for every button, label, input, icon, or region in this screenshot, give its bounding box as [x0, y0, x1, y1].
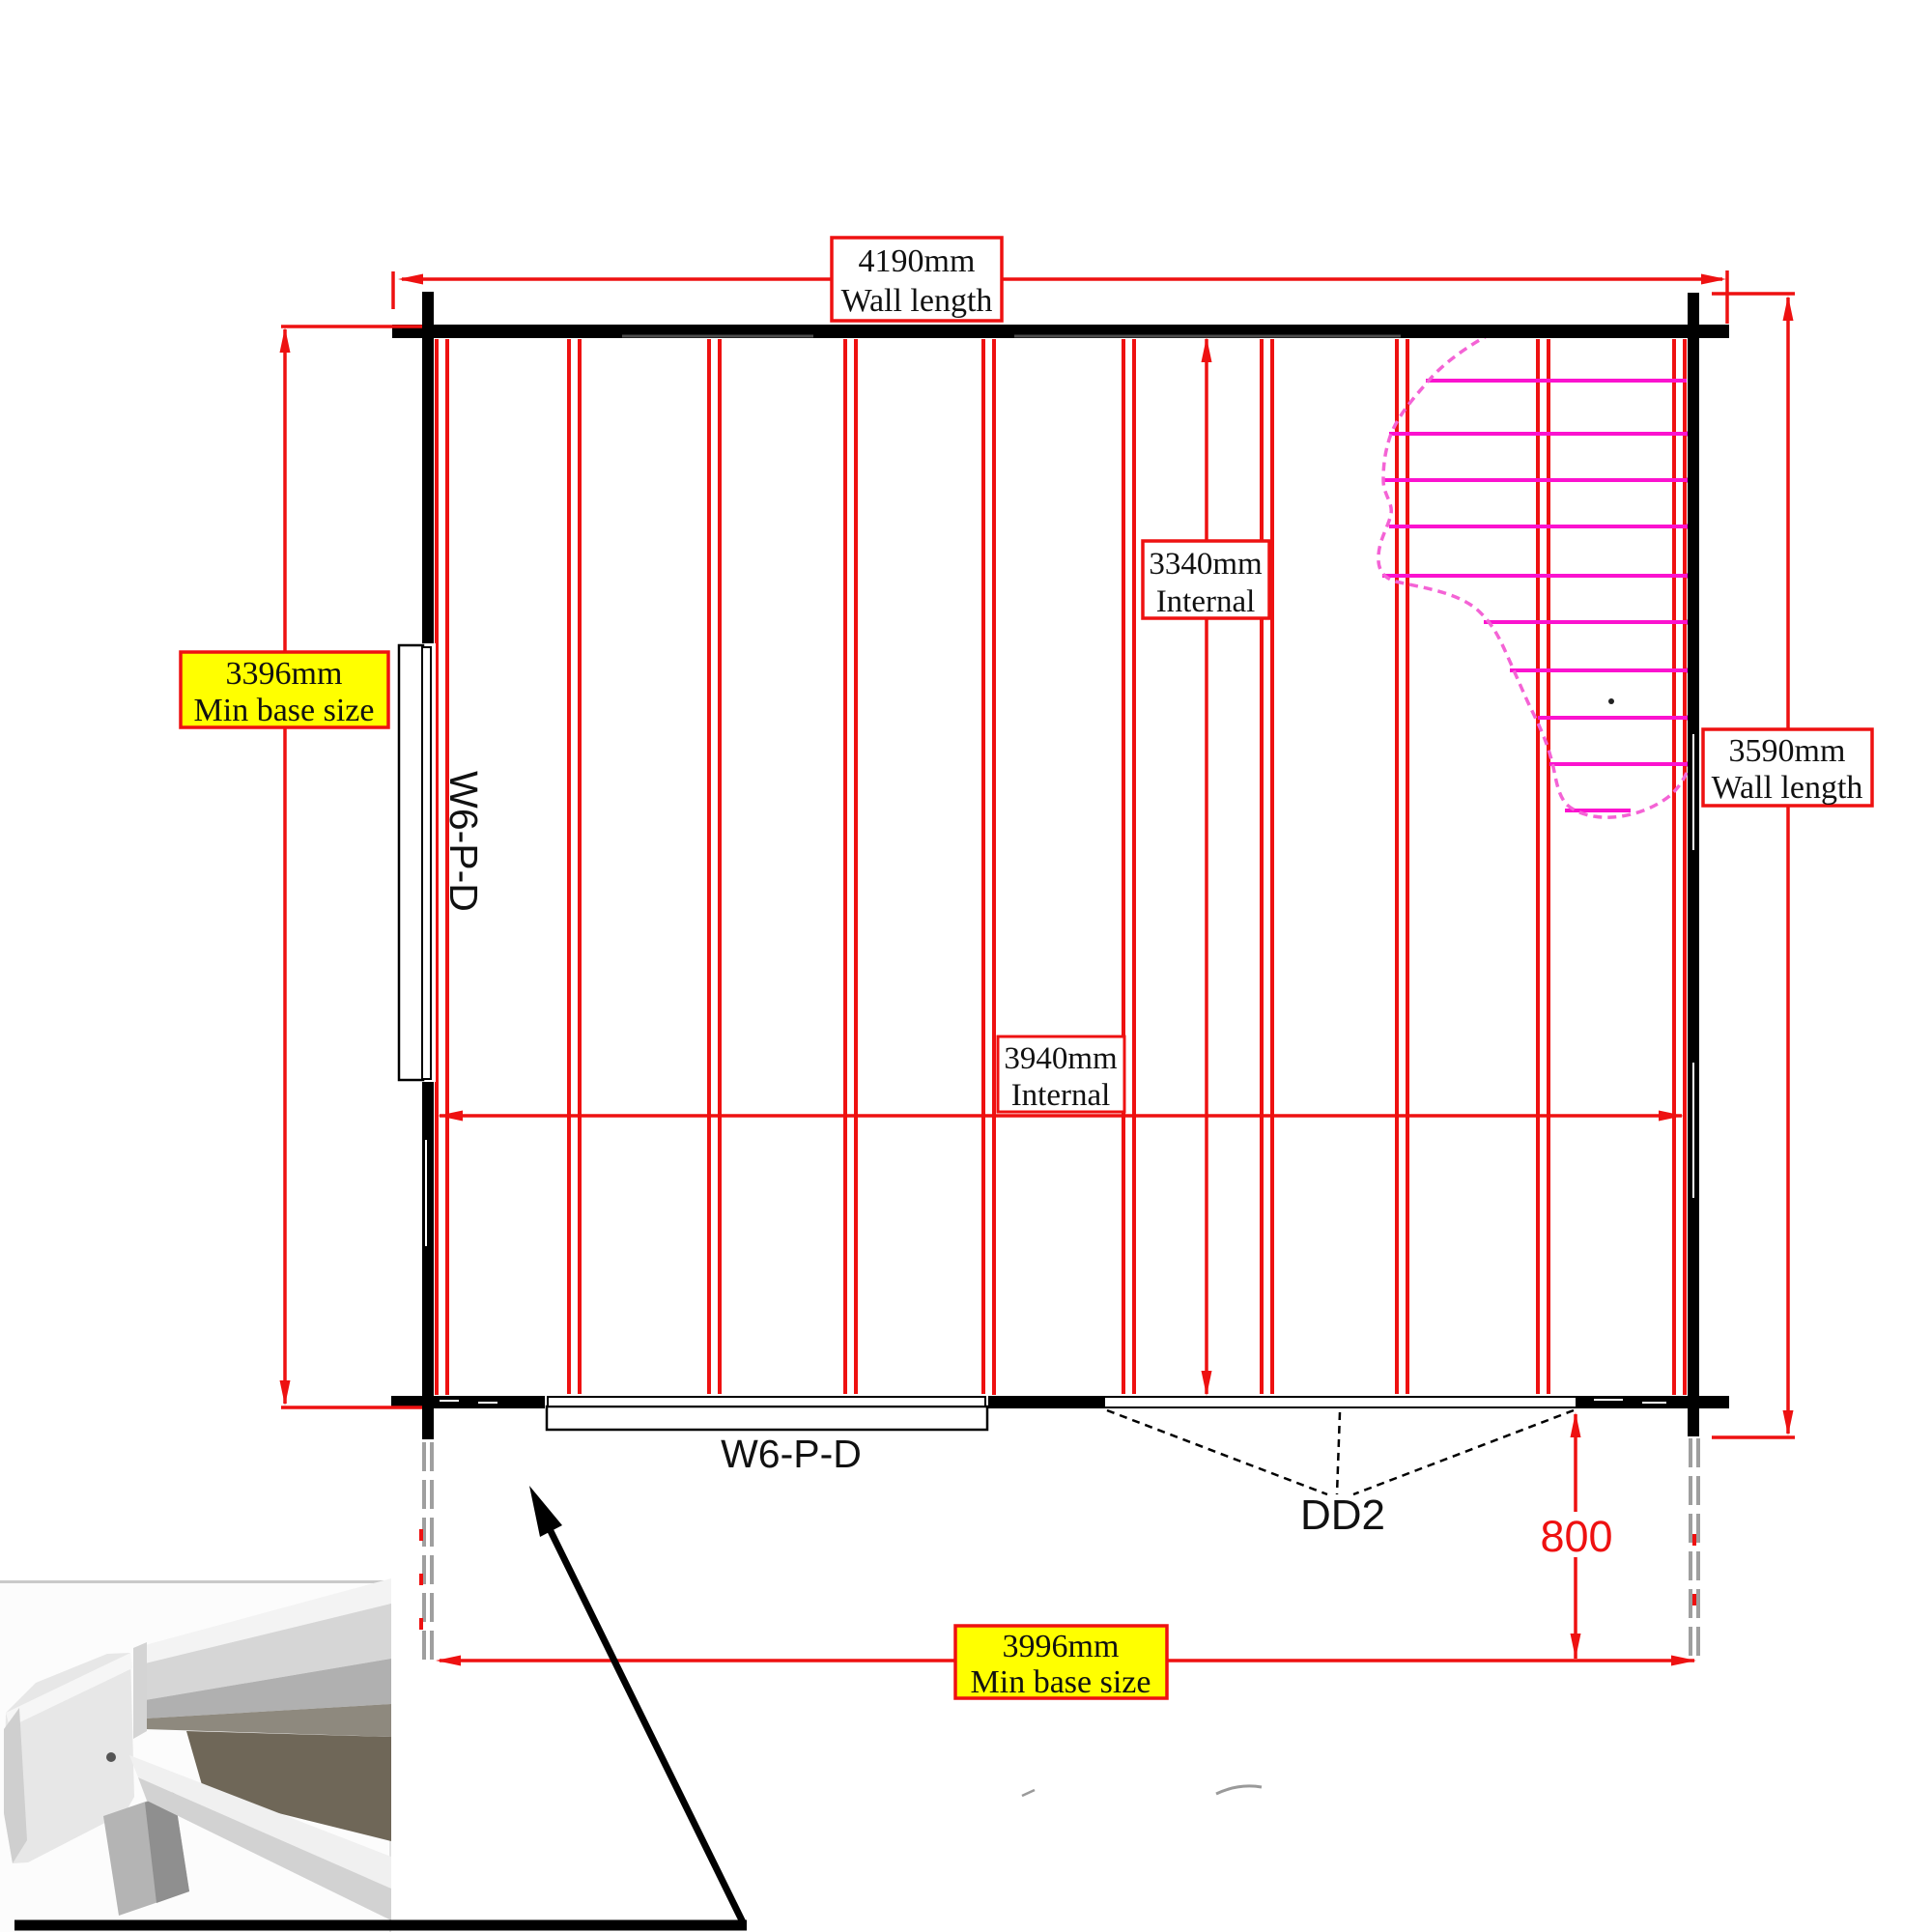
svg-text:3940mm: 3940mm — [1004, 1041, 1118, 1076]
svg-text:800: 800 — [1540, 1512, 1612, 1561]
svg-text:W6-P-D: W6-P-D — [441, 771, 486, 912]
svg-text:Wall length: Wall length — [841, 283, 993, 319]
svg-text:DD2: DD2 — [1300, 1492, 1385, 1539]
svg-text:Min base size: Min base size — [971, 1664, 1151, 1700]
svg-text:Min base size: Min base size — [194, 693, 375, 728]
svg-text:W6-P-D: W6-P-D — [721, 1432, 862, 1476]
svg-text:3590mm: 3590mm — [1729, 733, 1846, 769]
svg-text:Internal: Internal — [1156, 584, 1256, 619]
svg-text:Internal: Internal — [1011, 1078, 1111, 1113]
svg-text:3996mm: 3996mm — [1003, 1629, 1120, 1664]
svg-text:Wall length: Wall length — [1712, 770, 1863, 806]
svg-text:4190mm: 4190mm — [859, 243, 976, 279]
svg-text:3396mm: 3396mm — [226, 656, 343, 692]
svg-text:3340mm: 3340mm — [1149, 547, 1263, 582]
